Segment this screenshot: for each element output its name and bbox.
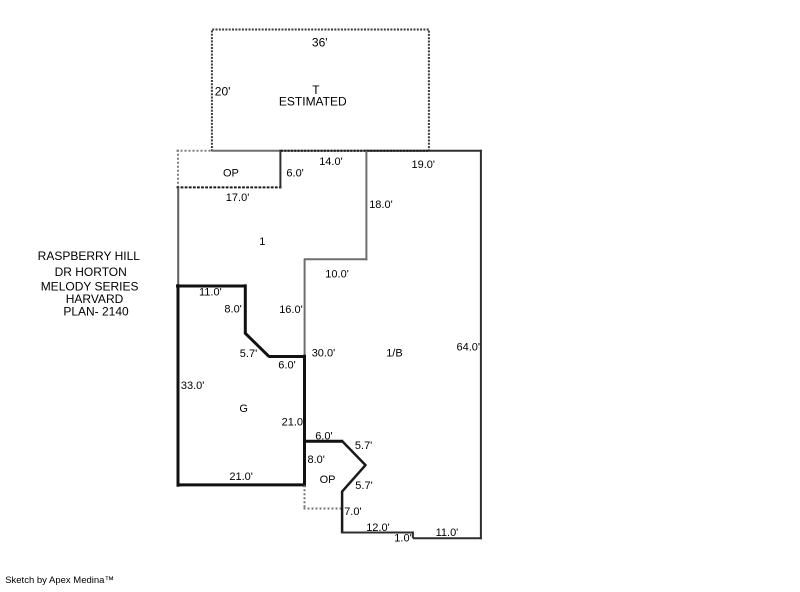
svg-text:ESTIMATED: ESTIMATED (279, 95, 347, 109)
svg-text:11.0': 11.0' (199, 287, 222, 299)
svg-text:19.0': 19.0' (412, 159, 436, 171)
svg-text:17.0': 17.0' (226, 192, 250, 204)
svg-text:10.0': 10.0' (325, 268, 349, 280)
svg-text:5.7': 5.7' (240, 348, 257, 360)
svg-text:1/B: 1/B (386, 347, 403, 359)
svg-text:18.0': 18.0' (369, 199, 393, 211)
svg-text:PLAN- 2140: PLAN- 2140 (63, 305, 129, 319)
svg-text:21.0': 21.0' (282, 416, 306, 428)
svg-text:RASPBERRY HILL: RASPBERRY HILL (38, 249, 141, 263)
svg-text:OP: OP (320, 474, 336, 486)
svg-text:6.0': 6.0' (315, 431, 332, 443)
svg-text:36': 36' (312, 36, 328, 50)
svg-text:G: G (239, 403, 248, 415)
svg-text:20': 20' (215, 85, 231, 99)
svg-text:Sketch by Apex Medina™: Sketch by Apex Medina™ (5, 575, 114, 586)
svg-text:8.0': 8.0' (224, 303, 241, 315)
svg-text:64.0': 64.0' (457, 341, 481, 353)
svg-text:DR HORTON: DR HORTON (55, 265, 127, 279)
svg-text:11.0': 11.0' (436, 527, 459, 539)
svg-text:16.0': 16.0' (279, 304, 303, 316)
svg-text:1.0': 1.0' (394, 533, 411, 545)
svg-text:6.0': 6.0' (286, 168, 303, 180)
svg-text:21.0': 21.0' (229, 471, 253, 483)
svg-text:33.0': 33.0' (181, 380, 205, 392)
svg-text:14.0': 14.0' (319, 156, 343, 168)
svg-text:5.7': 5.7' (355, 440, 372, 452)
svg-text:5.7': 5.7' (355, 480, 372, 492)
svg-text:1: 1 (259, 236, 265, 248)
svg-text:30.0': 30.0' (312, 347, 336, 359)
svg-text:8.0': 8.0' (308, 454, 325, 466)
svg-text:OP: OP (223, 168, 239, 180)
svg-text:7.0': 7.0' (344, 506, 361, 518)
svg-text:6.0': 6.0' (278, 359, 295, 371)
svg-text:12.0': 12.0' (366, 522, 390, 534)
